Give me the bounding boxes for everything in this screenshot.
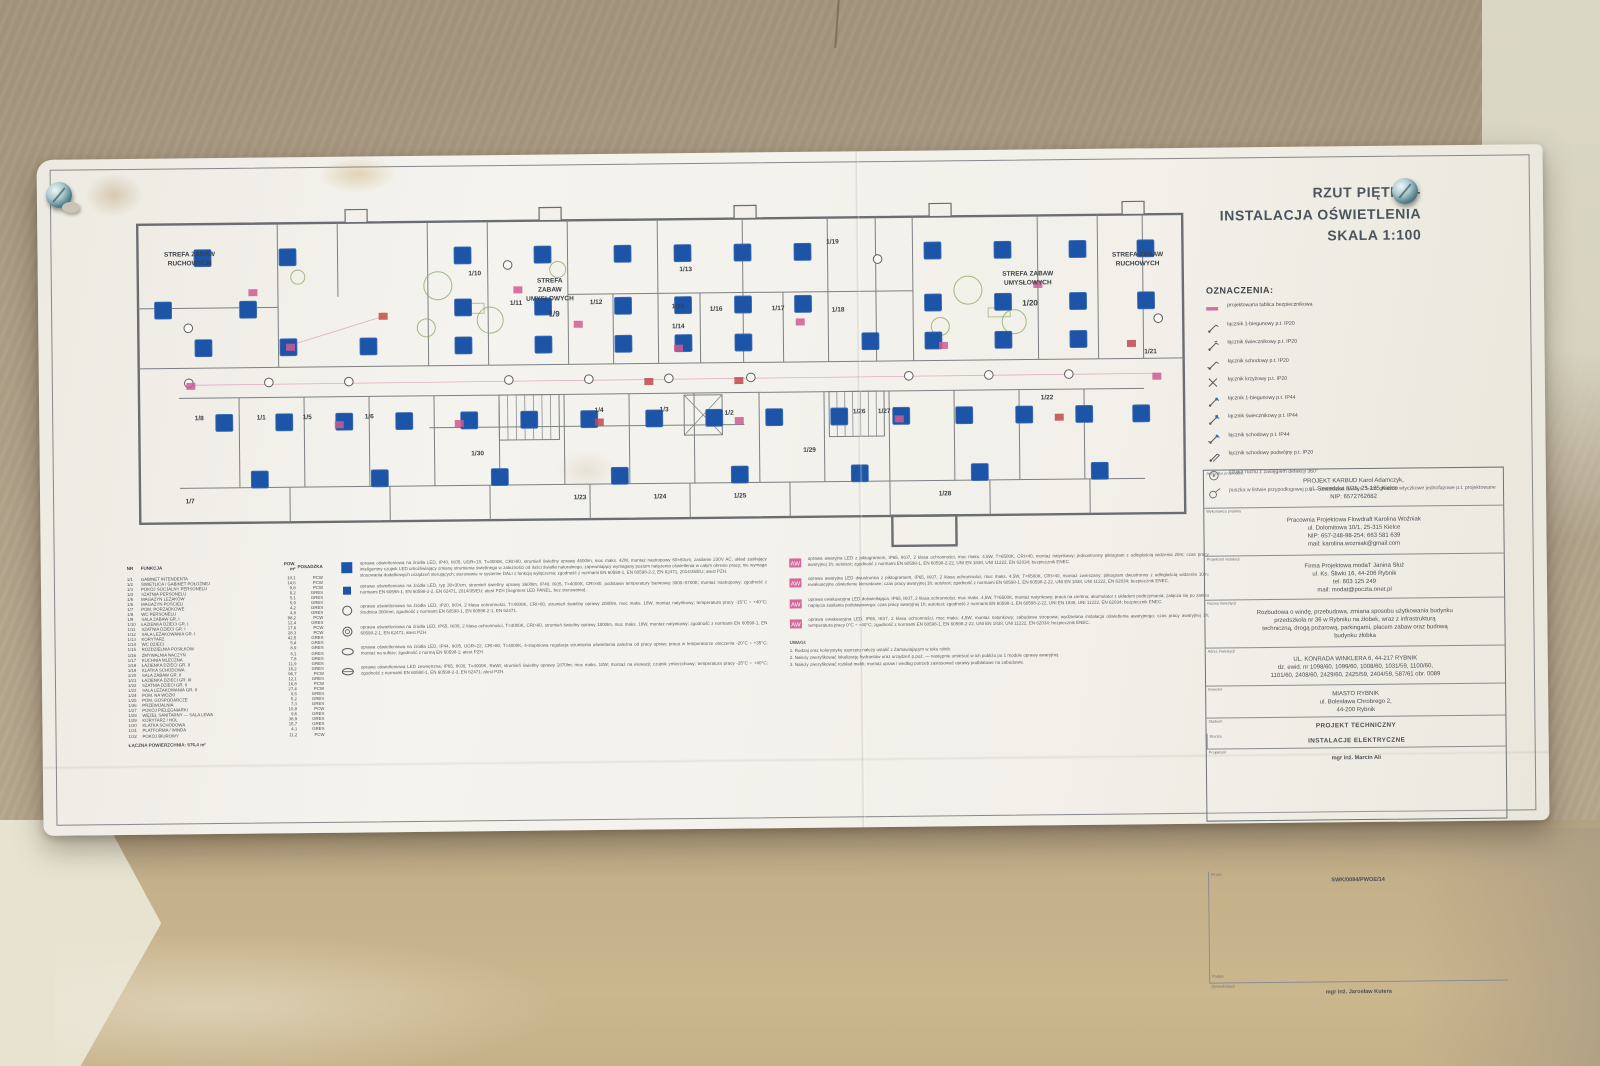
partition-wall xyxy=(824,392,825,482)
room-label: 1/30 xyxy=(471,450,484,457)
row-value-line: budynku żłobka xyxy=(1210,631,1501,642)
room-label: 1/24 xyxy=(654,493,667,500)
luminaire-led-panel xyxy=(239,301,256,318)
room-label: 1/27 xyxy=(878,408,891,415)
luminaire-led-panel xyxy=(1069,240,1086,257)
oval2-icon xyxy=(342,665,355,680)
signature-label: Podpis xyxy=(1212,975,1224,979)
title-block-row: Wykonawca projektuPracownia Projektowa F… xyxy=(1204,506,1503,557)
emergency-fixture-mark xyxy=(735,417,744,424)
wire-icon xyxy=(1206,303,1220,315)
partition-wall xyxy=(564,394,565,484)
luminaire-led-panel xyxy=(396,412,413,429)
emergency-fixture-mark xyxy=(1127,340,1136,347)
plaster-smear xyxy=(55,935,555,1066)
room-label: 1/16 xyxy=(710,306,723,313)
spec-item: AWoprawa ewakuacyjna LED doświetlająca, … xyxy=(789,592,1209,611)
room-label: 1/14 xyxy=(672,323,685,330)
luminaire-led-panel xyxy=(971,463,988,480)
person-name: mgr inż. Jarosław Kutera xyxy=(1326,989,1392,996)
partition-wall xyxy=(139,358,1184,369)
luminaire-led-panel xyxy=(734,296,751,313)
stadium-value: PROJEKT TECHNICZNY xyxy=(1209,721,1502,731)
emergency-fixture-mark xyxy=(186,383,195,390)
spec-item: AWoprawa ewakuacyjna LED, IP65, IK07, 2 … xyxy=(789,613,1209,632)
luminaire-led-panel xyxy=(521,411,538,428)
room-label: 1/13 xyxy=(679,266,692,273)
title-block-row: Jednostka projektowaPROJEKT KARBUD Karol… xyxy=(1204,468,1503,509)
luminaire-downlight xyxy=(504,376,513,385)
uwagi-notes: UWAGI:1. Rodzaj oraz kolorystykę osprzęt… xyxy=(790,636,1210,669)
luminaire-downlight xyxy=(344,377,353,386)
spec-item: oprawa oświetleniowa na źródła LED, IP65… xyxy=(341,620,767,639)
partition-wall xyxy=(337,223,338,297)
oval-icon xyxy=(342,645,355,660)
legend-item: łącznik 1-biegunowy p.t. IP44 xyxy=(1207,392,1507,407)
emergency-fixture-mark xyxy=(895,415,904,422)
luminaire-specs-column-2: AWoprawa awaryjna LED z piktogramem, IP6… xyxy=(789,552,1210,670)
wall-stub xyxy=(345,209,367,222)
room-label: 1/8 xyxy=(195,415,204,422)
furniture-table xyxy=(954,276,982,304)
table-cell: PCW xyxy=(299,731,326,736)
luminaire-led-panel xyxy=(995,331,1012,348)
room-label: 1/17 xyxy=(772,305,785,312)
room-label: 1/18 xyxy=(832,306,845,313)
legend-item: projektowana tablica bezpiecznikowa xyxy=(1206,300,1506,315)
row-value-line: mail: karolina.wozniak@gmail.com xyxy=(1209,539,1500,550)
aw-icon: AW xyxy=(789,576,802,591)
room-label: 1/19 xyxy=(826,239,839,246)
legend-item-label: łącznik 1-biegunowy p.t. IP44 xyxy=(1228,394,1296,401)
luminaire-led-panel xyxy=(454,247,471,264)
luminaire-led-panel xyxy=(1137,292,1154,309)
luminaire-led-panel xyxy=(1091,462,1108,479)
room-label: STREFA ZABAW xyxy=(1112,251,1164,259)
legend-item-label: łącznik 1-biegunowy p.t. IP20 xyxy=(1227,320,1295,327)
emergency-fixture-mark xyxy=(674,345,683,352)
partition-wall xyxy=(304,397,305,487)
legend-item-label: łącznik krzyżowy p.t. IP20 xyxy=(1228,376,1287,383)
person-row: Sprawdzającymgr inż. Jarosław KuteraNr u… xyxy=(1209,981,1510,1066)
luminaire-led-panel xyxy=(731,466,748,483)
partition-wall xyxy=(889,391,890,481)
room-label: 1/7 xyxy=(186,498,195,505)
emergency-fixture-mark xyxy=(939,342,948,349)
room-label: 1/1 xyxy=(257,415,266,422)
legend-item: łącznik schodowy podwójny p.t. IP20 xyxy=(1208,448,1508,463)
stadium-label: Stadium xyxy=(1208,720,1222,724)
spec-item: oprawa oświetleniowa na źródła LED, IP40… xyxy=(341,556,767,578)
furniture-table xyxy=(477,307,503,333)
legend-item-label: łącznik świecznikowy p.t. IP44 xyxy=(1228,413,1298,420)
emergency-fixture-mark xyxy=(335,421,344,428)
room-table-header: POSADZKA xyxy=(297,561,324,575)
legend-item: łącznik schodowy p.t. IP44 xyxy=(1207,429,1507,444)
title-block-row: Projektant instalacjiFirma Projektowa mo… xyxy=(1205,554,1504,601)
room-label: 1/3 xyxy=(660,406,669,413)
luminaire-led-panel xyxy=(706,409,723,426)
room-label: 1/22 xyxy=(1041,394,1054,401)
aw-icon: AW xyxy=(789,617,802,632)
room-schedule-table: NRFUNKCJAPOW. m²POSADZKA 1/1GABINET INTE… xyxy=(127,561,327,748)
spec-text: oprawa oświetleniowa LED zewnętrzna, IP6… xyxy=(361,661,768,680)
drawing-sheet: STREFA ZABAWRUCHOWYCHSTREFAZABAWUMYSŁOWY… xyxy=(37,144,1550,836)
sq-sm-icon xyxy=(341,584,354,599)
row-label: Nazwa inwestycji xyxy=(1207,601,1236,605)
wall-stub xyxy=(1122,201,1144,214)
furniture-table xyxy=(291,270,305,284)
svg-text:AW: AW xyxy=(791,561,801,567)
spec-item: oprawa oświetleniowa na źródła LED, IP44… xyxy=(342,640,768,659)
stadium-branza-row: StadiumPROJEKT TECHNICZNYBranżaINSTALACJ… xyxy=(1206,716,1505,750)
emergency-fixture-mark xyxy=(455,420,464,427)
partition-wall xyxy=(629,394,630,484)
luminaire-downlight xyxy=(664,374,673,383)
luminaire-led-panel xyxy=(279,249,296,266)
title-line-3: SKALA 1:100 xyxy=(1220,225,1422,249)
upr-number: SWK/0084/PWOE/14 xyxy=(1331,877,1385,884)
spec-text: oprawa awaryjna LED z piktogramem, IP65,… xyxy=(808,552,1209,571)
emergency-fixture-mark xyxy=(644,378,653,385)
title-block: Jednostka projektowaPROJEKT KARBUD Karol… xyxy=(1203,467,1508,822)
wall-stub xyxy=(539,207,561,220)
partition-wall xyxy=(434,396,435,486)
legend-item: łącznik świecznikowy p.t. IP44 xyxy=(1207,411,1507,426)
luminaire-led-panel xyxy=(534,246,551,263)
spec-text: oprawa ewakuacyjna LED, IP65, IK07, 2 kl… xyxy=(808,613,1209,632)
table-cell: 11,2 xyxy=(279,732,299,737)
luminaire-downlight xyxy=(873,255,882,264)
wall-stub xyxy=(734,205,756,218)
row-label: Jednostka projektowa xyxy=(1206,471,1243,475)
sq-lg-icon xyxy=(341,561,354,579)
luminaire-downlight xyxy=(1064,370,1073,379)
luminaire-led-panel xyxy=(360,338,377,355)
sws-icon xyxy=(1207,358,1221,370)
luminaire-downlight xyxy=(984,371,993,380)
screw-pin-right xyxy=(1392,178,1418,204)
room-label: 1/11 xyxy=(510,300,523,307)
emergency-fixture-mark xyxy=(248,289,257,296)
table-cell: POKÓJ BIUROWY xyxy=(143,732,280,738)
luminaire-led-panel xyxy=(734,244,751,261)
circ2-icon xyxy=(341,624,354,639)
room-label: RUCHOWYCH xyxy=(168,260,212,267)
legend-item-label: projektowana tablica bezpiecznikowa xyxy=(1227,302,1312,310)
table-cell: 1/32 xyxy=(129,733,143,738)
spec-text: oprawa ewakuacyjna LED doświetlająca, IP… xyxy=(808,592,1209,611)
circ-icon xyxy=(341,604,354,619)
room-label: 1/4 xyxy=(595,407,604,414)
room-label: 1/6 xyxy=(365,413,374,420)
luminaire-led-panel xyxy=(994,293,1011,310)
room-label: 1/15 xyxy=(672,303,685,310)
legend-heading: OZNACZENIA: xyxy=(1206,283,1506,296)
partition-wall xyxy=(179,388,1144,398)
row-value-line: 44-200 Rybnik xyxy=(1210,705,1501,716)
luminaire-led-panel xyxy=(276,414,293,431)
washer-left xyxy=(62,202,80,213)
sw1-icon xyxy=(1206,321,1220,333)
luminaire-downlight xyxy=(584,375,593,384)
luminaire-downlight xyxy=(746,373,755,382)
spec-item: oprawa oświetleniowa na źródła LED, IP20… xyxy=(341,600,767,619)
spec-text: oprawa oświetleniowa na źródła LED, typ … xyxy=(360,579,767,598)
room-label: 1/25 xyxy=(734,492,747,499)
sw2-icon xyxy=(1206,340,1220,352)
title-line-1: RZUT PIĘTRA - xyxy=(1219,181,1421,205)
partition-wall xyxy=(568,291,913,295)
luminaire-led-panel xyxy=(924,242,941,259)
partition-wall xyxy=(700,293,701,363)
aw-icon: AW xyxy=(789,556,802,571)
photo-of-pinned-drawing: STREFA ZABAWRUCHOWYCHSTREFAZABAWUMYSŁOWY… xyxy=(0,0,1600,1066)
partition-wall xyxy=(567,220,569,364)
wall-stub xyxy=(929,203,951,216)
luminaire-led-panel xyxy=(371,470,388,487)
partition-wall xyxy=(427,222,429,366)
luminaire-led-panel xyxy=(735,334,752,351)
partition-wall xyxy=(369,396,370,486)
room-label: STREFA ZABAW xyxy=(164,251,216,259)
spec-text: oprawa oświetleniowa na źródła LED, IP20… xyxy=(360,600,767,619)
partition-wall xyxy=(277,223,279,367)
legend-item-label: łącznik schodowy podwójny p.t. IP20 xyxy=(1229,450,1314,458)
emergency-fixture-mark xyxy=(1152,373,1161,380)
luminaire-led-panel xyxy=(614,297,631,314)
room-label: 1/5 xyxy=(303,414,312,421)
luminaire-led-panel xyxy=(611,467,628,484)
furniture-table xyxy=(417,319,435,337)
legend-item-label: łącznik świecznikowy p.t. IP20 xyxy=(1227,339,1297,346)
room-table-header: NR xyxy=(127,563,141,577)
room-label: 1/12 xyxy=(590,299,603,306)
room-label: 1/2 xyxy=(725,410,734,417)
luminaire-led-panel xyxy=(924,294,941,311)
room-label: 1/9 xyxy=(549,309,561,318)
emergency-fixture-mark xyxy=(574,321,583,328)
luminaire-led-panel xyxy=(831,408,848,425)
row-value-line: NIP: 6572762682 xyxy=(1208,492,1499,503)
luminaire-downlight xyxy=(184,324,193,333)
legend-item-label: łącznik schodowy p.t. IP20 xyxy=(1228,357,1289,364)
title-block-row: Nazwa inwestycjiRozbudowa o windę, przeb… xyxy=(1205,598,1504,649)
swsf-icon xyxy=(1207,432,1221,444)
partition-wall xyxy=(487,221,489,365)
title-block-row: InwestorMIASTO RYBNIKul. Bolesława Chrob… xyxy=(1206,684,1505,719)
role-label: Projektant xyxy=(1209,751,1226,755)
title-line-2: INSTALACJA OŚWIETLENIA xyxy=(1220,203,1422,227)
partition-wall xyxy=(954,390,955,480)
luminaire-led-panel xyxy=(216,414,233,431)
person-name: mgr inż. Marcin Ali xyxy=(1332,755,1382,762)
partition-wall xyxy=(783,292,784,362)
room-label: UMYSŁOWYCH xyxy=(1004,279,1052,287)
emergency-fixture-mark xyxy=(1055,414,1064,421)
luminaire-downlight xyxy=(904,371,913,380)
legend-item: łącznik świecznikowy p.t. IP20 xyxy=(1206,337,1506,352)
furniture-table xyxy=(1002,310,1026,334)
partition-wall xyxy=(613,294,614,364)
luminaire-led-panel xyxy=(1069,292,1086,309)
luminaire-led-panel xyxy=(614,245,631,262)
person-row: Projektantmgr inż. Marcin AliNr upr.SWK/… xyxy=(1207,747,1508,984)
wiring-line xyxy=(191,380,649,386)
legend-item-label: łącznik schodowy p.t. IP44 xyxy=(1228,431,1289,438)
luminaire-led-panel xyxy=(491,468,508,485)
room-label: STREFA xyxy=(537,277,563,284)
spec-item: oprawa oświetleniowa LED zewnętrzna, IP6… xyxy=(342,661,768,680)
luminaire-led-panel xyxy=(154,302,171,319)
legend-item: łącznik 1-biegunowy p.t. IP20 xyxy=(1206,318,1506,333)
luminaire-downlight xyxy=(1154,314,1163,323)
emergency-fixture-mark xyxy=(796,318,805,325)
partition-wall xyxy=(1142,214,1144,358)
partition-wall xyxy=(1019,390,1020,480)
sw1f-icon xyxy=(1207,395,1221,407)
luminaire-downlight xyxy=(503,261,512,270)
luminaire-led-panel xyxy=(794,243,811,260)
room-label: 1/20 xyxy=(1022,298,1038,307)
room-label: ZABAW xyxy=(538,286,563,293)
partition-wall xyxy=(1097,215,1099,359)
luminaire-led-panel xyxy=(195,340,212,357)
luminaire-led-panel xyxy=(455,337,472,354)
legend-item: łącznik schodowy p.t. IP20 xyxy=(1207,355,1507,370)
emergency-fixture-mark xyxy=(513,286,522,293)
role-label: Sprawdzający xyxy=(1211,985,1235,989)
building-outline xyxy=(892,515,956,546)
luminaire-led-panel xyxy=(615,335,632,352)
luminaire-led-panel xyxy=(1016,406,1033,423)
row-value-line: 1101/60, 2408/60, 2429/60, 2425/59, 2404… xyxy=(1210,670,1501,681)
luminaire-led-panel xyxy=(766,409,783,426)
room-label: 1/29 xyxy=(803,447,816,454)
luminaire-led-panel xyxy=(956,407,973,424)
luminaire-led-panel xyxy=(994,241,1011,258)
partition-wall xyxy=(180,478,1145,488)
furniture-table xyxy=(550,261,566,277)
spec-text: oprawa oświetleniowa na źródła LED, IP40… xyxy=(360,556,767,578)
branza-value: INSTALACJE ELEKTRYCZNE xyxy=(1211,736,1503,746)
row-label: Adres inwestycji xyxy=(1208,649,1235,653)
luminaire-downlight xyxy=(265,378,274,387)
room-label: STREFA ZABAW xyxy=(1002,270,1054,278)
partition-wall xyxy=(1084,389,1085,479)
room-label: UMYSŁOWYCH xyxy=(526,295,574,303)
emergency-fixture-mark xyxy=(286,344,295,351)
emergency-fixture-mark xyxy=(379,313,388,320)
luminaire-led-panel xyxy=(862,333,879,350)
svg-text:AW: AW xyxy=(791,582,801,588)
room-label: 1/21 xyxy=(1144,348,1157,355)
luminaire-led-panel xyxy=(1070,330,1087,347)
spec-text: oprawa oświetleniowa na źródła LED, IP44… xyxy=(361,640,768,659)
partition-wall xyxy=(912,217,914,361)
partition-wall xyxy=(759,392,760,482)
room-label: 1/10 xyxy=(468,270,481,277)
luminaire-led-panel xyxy=(535,336,552,353)
luminaire-led-panel xyxy=(454,299,471,316)
spec-item: AWoprawa awaryjna LED dwustronna z pikto… xyxy=(789,572,1209,591)
luminaire-led-panel xyxy=(251,471,268,488)
room-label: 1/23 xyxy=(574,494,587,501)
spec-item: oprawa oświetleniowa na źródła LED, typ … xyxy=(341,579,767,598)
room-label: RUCHOWYCH xyxy=(1116,260,1160,267)
partition-wall xyxy=(239,398,240,488)
row-label: Wykonawca projektu xyxy=(1206,509,1241,513)
emergency-fixture-mark xyxy=(595,418,604,425)
luminaire-led-panel xyxy=(794,295,811,312)
spec-text: oprawa oświetleniowa na źródła LED, IP65… xyxy=(360,620,767,639)
row-label: Projektant instalacji xyxy=(1207,557,1240,561)
sw2f-icon xyxy=(1207,414,1221,426)
svg-text:AW: AW xyxy=(791,622,801,628)
legend-item: łącznik krzyżowy p.t. IP20 xyxy=(1207,374,1507,389)
spec-text: oprawa awaryjna LED dwustronna z piktogr… xyxy=(808,572,1209,591)
room-label: 1/28 xyxy=(939,490,952,497)
room-table-header: FUNKCJA xyxy=(141,561,278,576)
swx-icon xyxy=(1207,377,1221,389)
aw-icon: AW xyxy=(789,597,802,612)
luminaire-specs-column-1: oprawa oświetleniowa na źródła LED, IP40… xyxy=(341,556,768,685)
luminaire-led-panel xyxy=(674,245,691,262)
swd-icon xyxy=(1208,451,1222,463)
row-value-line: mail: modat@poczta.onet.pl xyxy=(1209,585,1500,596)
luminaire-led-panel xyxy=(1076,405,1093,422)
luminaire-led-panel xyxy=(1133,405,1150,422)
branza-label: Branża xyxy=(1210,735,1222,739)
partition-wall xyxy=(657,219,659,363)
room-table-header: POW. m² xyxy=(277,561,297,575)
title-block-row: Adres inwestycjiUL. KONRADA WINKLERA 6, … xyxy=(1206,646,1505,687)
upr-label: Nr upr. xyxy=(1211,873,1222,877)
svg-text:AW: AW xyxy=(791,602,801,608)
emergency-fixture-mark xyxy=(734,377,743,384)
spec-item: AWoprawa awaryjna LED z piktogramem, IP6… xyxy=(789,552,1209,571)
row-label: Inwestor xyxy=(1208,688,1222,692)
wiring-line xyxy=(649,373,1157,379)
